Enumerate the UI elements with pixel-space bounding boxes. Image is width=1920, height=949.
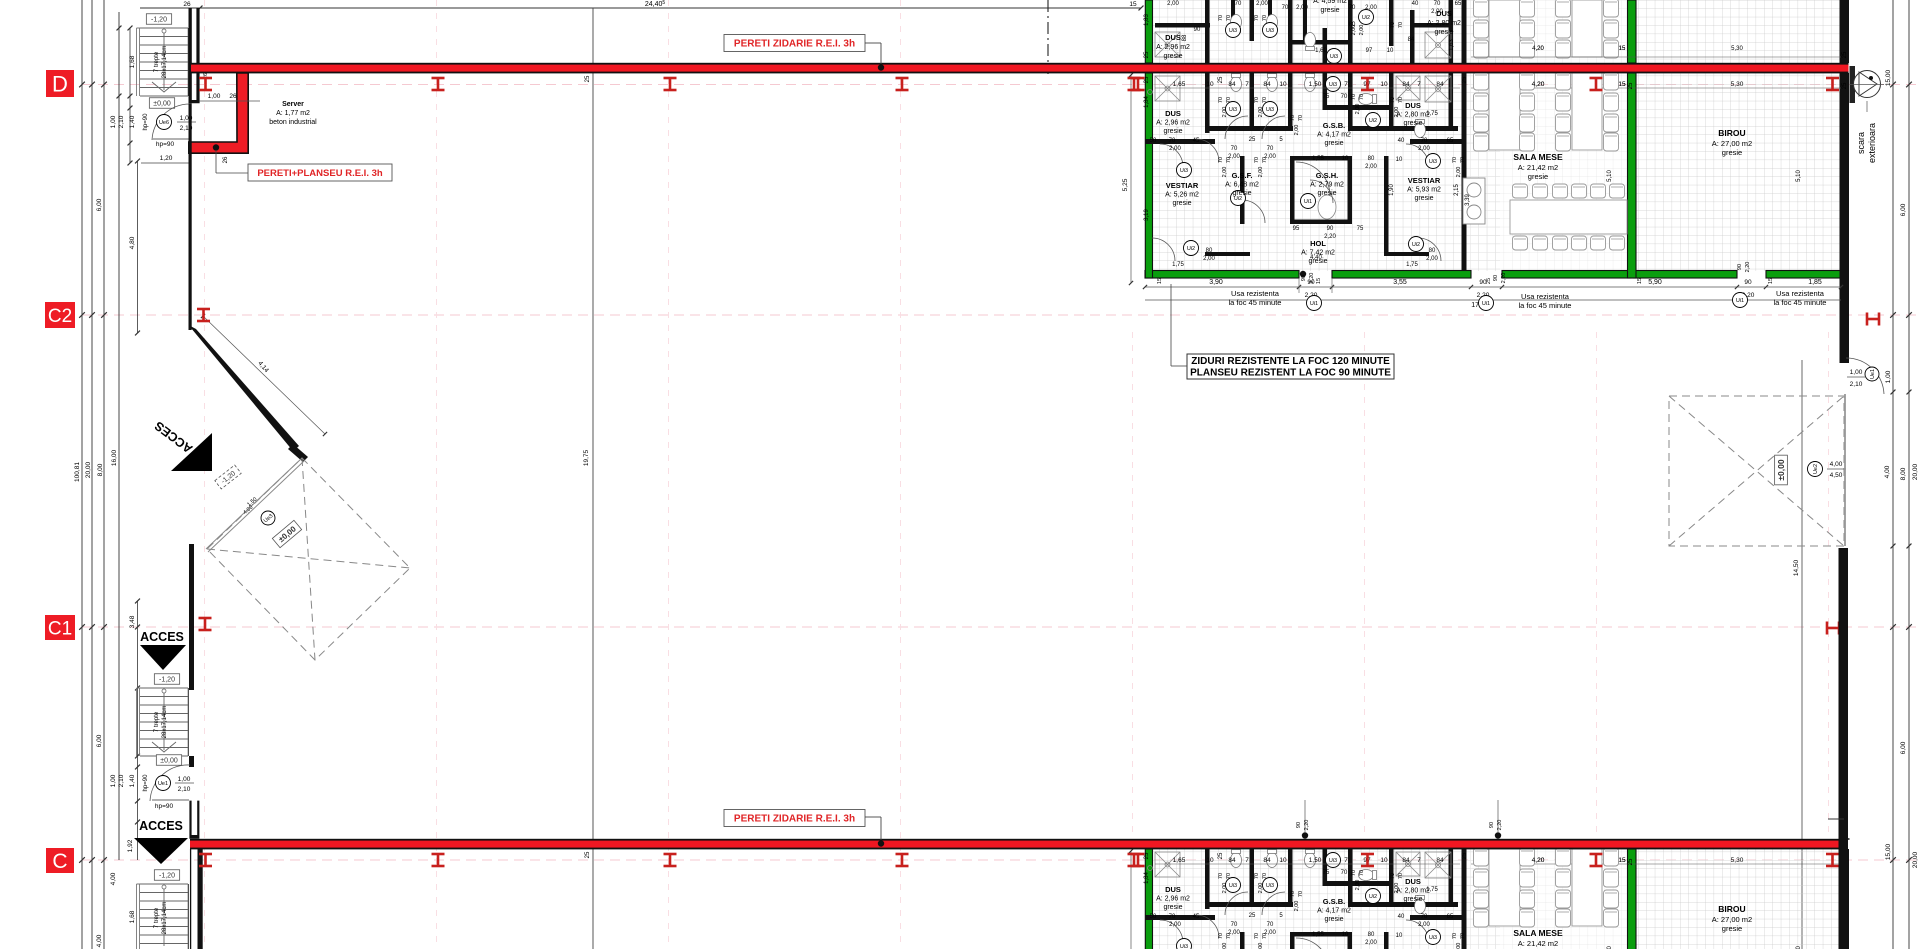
svg-text:Ui3: Ui3 — [1266, 883, 1274, 889]
svg-text:4,00: 4,00 — [1830, 461, 1843, 468]
svg-text:84: 84 — [1402, 857, 1410, 864]
svg-text:2,00: 2,00 — [1167, 1, 1179, 7]
svg-text:Ui3: Ui3 — [1329, 858, 1337, 864]
svg-text:2,00: 2,00 — [1365, 940, 1377, 946]
svg-text:A: 27,00 m2: A: 27,00 m2 — [1712, 915, 1752, 924]
svg-text:2,20: 2,20 — [1324, 234, 1336, 240]
svg-text:70: 70 — [1235, 1, 1242, 7]
svg-text:±0,00: ±0,00 — [160, 758, 178, 765]
svg-text:BIROU: BIROU — [1718, 904, 1745, 914]
svg-text:la foc 45 minute: la foc 45 minute — [1519, 301, 1572, 310]
svg-text:65: 65 — [1447, 138, 1454, 144]
svg-text:90: 90 — [1489, 822, 1495, 828]
svg-text:70: 70 — [1231, 922, 1238, 928]
svg-text:±0,00: ±0,00 — [1776, 459, 1786, 480]
svg-text:25: 25 — [1842, 51, 1848, 58]
svg-text:70: 70 — [1254, 873, 1260, 879]
svg-text:4,00: 4,00 — [110, 872, 117, 885]
svg-text:50: 50 — [1150, 914, 1157, 920]
svg-text:gresie: gresie — [1434, 29, 1453, 36]
svg-text:2,00: 2,00 — [1294, 125, 1300, 136]
svg-text:84: 84 — [1408, 37, 1415, 43]
svg-text:25: 25 — [1249, 913, 1256, 919]
svg-text:2,00: 2,00 — [1426, 256, 1438, 262]
svg-text:70: 70 — [1460, 157, 1466, 163]
svg-text:Ui3: Ui3 — [1429, 935, 1437, 941]
svg-text:10: 10 — [1342, 156, 1349, 162]
svg-text:10: 10 — [1206, 81, 1214, 88]
svg-text:70: 70 — [1262, 157, 1268, 163]
svg-text:26: 26 — [229, 93, 237, 100]
svg-text:10: 10 — [1279, 81, 1287, 88]
svg-text:16,00: 16,00 — [111, 449, 118, 466]
svg-text:70: 70 — [1226, 873, 1232, 879]
svg-text:2,00: 2,00 — [1258, 943, 1264, 949]
svg-text:25: 25 — [1628, 82, 1634, 89]
svg-text:2,00: 2,00 — [1258, 167, 1264, 178]
svg-text:2,00: 2,00 — [1456, 167, 1462, 178]
svg-text:ZIDURI REZISTENTE LA FOC 120 M: ZIDURI REZISTENTE LA FOC 120 MINUTE — [1191, 356, 1390, 367]
svg-text:1,00: 1,00 — [1850, 369, 1863, 376]
svg-text:84: 84 — [1436, 81, 1444, 88]
svg-text:20,00: 20,00 — [1912, 463, 1919, 480]
svg-text:70: 70 — [1231, 146, 1238, 152]
svg-text:gresie: gresie — [1172, 200, 1191, 207]
svg-text:la foc 45 minute: la foc 45 minute — [1774, 298, 1827, 307]
svg-text:gresie: gresie — [1163, 128, 1182, 135]
svg-text:2,00: 2,00 — [1418, 922, 1430, 928]
svg-text:1,50: 1,50 — [1309, 81, 1322, 88]
svg-text:1,63: 1,63 — [1449, 39, 1455, 51]
svg-text:Ui3: Ui3 — [1180, 168, 1188, 174]
svg-text:Ue1: Ue1 — [1870, 369, 1876, 379]
svg-text:90: 90 — [1296, 822, 1302, 828]
svg-text:1,84: 1,84 — [1144, 96, 1150, 108]
svg-text:gresie: gresie — [1403, 120, 1422, 127]
svg-text:70: 70 — [1390, 97, 1396, 103]
svg-text:25: 25 — [1842, 82, 1848, 89]
svg-text:70: 70 — [1298, 891, 1304, 897]
svg-text:70: 70 — [1262, 933, 1268, 939]
svg-text:2,00: 2,00 — [1431, 9, 1443, 15]
svg-text:Ui3: Ui3 — [1330, 54, 1338, 60]
svg-text:2,20: 2,20 — [1501, 273, 1507, 284]
svg-text:6,00: 6,00 — [1900, 203, 1907, 216]
svg-text:80: 80 — [1429, 248, 1436, 254]
svg-text:DUS: DUS — [1165, 885, 1181, 894]
svg-text:70: 70 — [1452, 157, 1458, 163]
svg-text:G.S.B.: G.S.B. — [1323, 121, 1346, 130]
svg-text:65: 65 — [1447, 914, 1454, 920]
svg-text:A: 5,26 m2: A: 5,26 m2 — [1165, 192, 1199, 199]
svg-text:A: 6,48 m2: A: 6,48 m2 — [1225, 182, 1259, 189]
svg-text:scara: scara — [1856, 132, 1866, 154]
svg-text:70: 70 — [1298, 115, 1304, 121]
svg-text:D: D — [52, 71, 68, 96]
svg-text:1,40: 1,40 — [129, 115, 136, 128]
svg-text:15: 15 — [1619, 46, 1626, 52]
svg-text:-1,20: -1,20 — [151, 17, 167, 24]
svg-text:50: 50 — [1150, 138, 1157, 144]
svg-text:hp=90: hp=90 — [143, 774, 149, 792]
svg-text:70: 70 — [1359, 870, 1365, 876]
svg-text:2,00: 2,00 — [1355, 104, 1361, 115]
svg-text:A: 2,80 m2: A: 2,80 m2 — [1427, 20, 1461, 27]
svg-text:70: 70 — [1218, 97, 1224, 103]
svg-text:1,83: 1,83 — [1144, 14, 1150, 26]
svg-text:Ui3: Ui3 — [1266, 28, 1274, 34]
svg-text:gresie: gresie — [1722, 148, 1742, 157]
svg-text:28x17,14cm: 28x17,14cm — [162, 706, 168, 739]
svg-text:70: 70 — [1226, 933, 1232, 939]
svg-text:8,00: 8,00 — [1900, 467, 1907, 480]
svg-text:84: 84 — [1402, 81, 1410, 88]
svg-text:80: 80 — [1368, 932, 1375, 938]
svg-text:7: 7 — [1245, 857, 1249, 864]
svg-text:4,50: 4,50 — [1830, 472, 1843, 479]
svg-text:70: 70 — [1390, 22, 1396, 28]
svg-text:Ui2: Ui2 — [1369, 118, 1377, 124]
svg-text:3,39: 3,39 — [1465, 194, 1471, 206]
svg-text:2,20: 2,20 — [1309, 273, 1315, 284]
svg-text:2,15: 2,15 — [1454, 184, 1460, 196]
svg-text:70: 70 — [1349, 5, 1356, 11]
svg-text:1,90: 1,90 — [1389, 184, 1395, 196]
svg-text:Usa rezistenta: Usa rezistenta — [1776, 289, 1825, 298]
svg-text:70: 70 — [1290, 115, 1296, 121]
svg-text:2,00: 2,00 — [1258, 107, 1264, 118]
svg-text:gresie: gresie — [1324, 140, 1343, 147]
svg-text:1,20: 1,20 — [160, 155, 173, 162]
svg-text:1,68: 1,68 — [129, 55, 136, 68]
svg-text:Ue2: Ue2 — [1813, 464, 1819, 474]
svg-text:2,20: 2,20 — [1304, 820, 1310, 831]
svg-text:Ui3: Ui3 — [1429, 159, 1437, 165]
svg-text:1,00: 1,00 — [178, 776, 191, 783]
svg-text:70: 70 — [1267, 146, 1274, 152]
svg-text:80: 80 — [1206, 248, 1213, 254]
svg-text:70: 70 — [1169, 138, 1176, 144]
svg-text:2,00: 2,00 — [1394, 107, 1400, 118]
svg-text:10: 10 — [1206, 857, 1214, 864]
svg-text:1,75: 1,75 — [1406, 262, 1418, 268]
svg-text:exterioara: exterioara — [1867, 123, 1877, 163]
svg-text:1,65: 1,65 — [1173, 81, 1186, 88]
svg-text:70: 70 — [1290, 891, 1296, 897]
svg-text:ACCES: ACCES — [140, 630, 184, 644]
svg-text:90: 90 — [1194, 27, 1201, 33]
svg-text:2,00: 2,00 — [1222, 107, 1228, 118]
svg-text:100,81: 100,81 — [74, 462, 81, 482]
svg-text:70: 70 — [1434, 1, 1441, 7]
svg-text:-1,20: -1,20 — [159, 677, 175, 684]
svg-text:PERETI+PLANSEU R.E.I. 3h: PERETI+PLANSEU R.E.I. 3h — [257, 168, 383, 179]
svg-text:25: 25 — [1218, 76, 1224, 83]
svg-text:84: 84 — [1263, 81, 1271, 88]
svg-text:4,00: 4,00 — [1884, 465, 1891, 478]
svg-text:5,10: 5,10 — [1796, 170, 1802, 182]
svg-text:40: 40 — [1412, 1, 1419, 7]
svg-text:4,00: 4,00 — [96, 934, 103, 947]
svg-text:2,10: 2,10 — [178, 786, 191, 793]
svg-text:C1: C1 — [48, 618, 72, 639]
svg-text:70: 70 — [1254, 15, 1260, 21]
svg-text:75: 75 — [1323, 94, 1330, 100]
svg-text:15: 15 — [1618, 81, 1626, 88]
svg-text:1,65: 1,65 — [1173, 857, 1186, 864]
svg-text:7: 7 — [1417, 81, 1421, 88]
svg-text:1,55: 1,55 — [1312, 156, 1324, 162]
svg-text:la foc 45 minute: la foc 45 minute — [1229, 298, 1282, 307]
svg-text:1,00: 1,00 — [1885, 370, 1892, 383]
svg-text:70: 70 — [1254, 933, 1260, 939]
svg-text:gresie: gresie — [1317, 190, 1336, 197]
svg-text:70: 70 — [1226, 97, 1232, 103]
svg-text:28x17,14cm: 28x17,14cm — [162, 46, 168, 79]
svg-text:BIROU: BIROU — [1718, 128, 1745, 138]
svg-text:70: 70 — [1218, 873, 1224, 879]
svg-text:2,10: 2,10 — [118, 115, 125, 128]
svg-text:15: 15 — [1157, 278, 1163, 284]
svg-text:90: 90 — [1744, 279, 1752, 286]
svg-text:gresie: gresie — [1163, 904, 1182, 911]
svg-text:10: 10 — [1380, 857, 1388, 864]
svg-text:6,00: 6,00 — [96, 734, 103, 747]
svg-text:7 trepte: 7 trepte — [154, 51, 160, 72]
svg-text:A: 2,80 m2: A: 2,80 m2 — [1396, 888, 1430, 895]
svg-text:70: 70 — [1341, 94, 1348, 100]
svg-text:Ui2: Ui2 — [1412, 242, 1420, 248]
svg-text:SALA MESE: SALA MESE — [1513, 928, 1563, 938]
svg-text:80: 80 — [1349, 22, 1356, 28]
svg-text:1,75: 1,75 — [1426, 111, 1438, 117]
svg-text:6,00: 6,00 — [96, 198, 103, 211]
svg-text:70: 70 — [1267, 922, 1274, 928]
svg-text:40: 40 — [1398, 914, 1405, 920]
svg-text:6,00: 6,00 — [1900, 741, 1907, 754]
svg-text:10: 10 — [1342, 932, 1349, 938]
svg-text:A: 4,59 m2: A: 4,59 m2 — [1313, 0, 1347, 5]
svg-text:A: 21,42 m2: A: 21,42 m2 — [1518, 939, 1558, 948]
svg-text:25: 25 — [1144, 76, 1150, 83]
svg-text:15: 15 — [1637, 278, 1643, 284]
svg-text:2,00: 2,00 — [1222, 943, 1228, 949]
svg-text:14,50: 14,50 — [1793, 559, 1800, 576]
svg-text:25: 25 — [1144, 51, 1150, 58]
svg-text:gresie: gresie — [1163, 53, 1182, 60]
svg-text:A: 2,96 m2: A: 2,96 m2 — [1156, 44, 1190, 51]
svg-text:A: 27,00 m2: A: 27,00 m2 — [1712, 139, 1752, 148]
svg-text:25: 25 — [1144, 852, 1150, 859]
svg-text:1,84: 1,84 — [1144, 872, 1150, 884]
svg-text:88: 88 — [1182, 34, 1188, 41]
svg-text:Ue6: Ue6 — [159, 120, 169, 126]
svg-text:A: 5,93 m2: A: 5,93 m2 — [1407, 187, 1441, 194]
svg-text:7 trepte: 7 trepte — [154, 711, 160, 732]
svg-text:PERETI ZIDARIE R.E.I. 3h: PERETI ZIDARIE R.E.I. 3h — [734, 814, 855, 825]
svg-text:±0,00: ±0,00 — [153, 101, 171, 108]
svg-text:A: 4,17 m2: A: 4,17 m2 — [1317, 132, 1351, 139]
svg-text:2,00: 2,00 — [1222, 883, 1228, 894]
svg-text:2,00: 2,00 — [1365, 5, 1377, 11]
svg-text:90: 90 — [1737, 264, 1743, 270]
svg-text:70: 70 — [1390, 873, 1396, 879]
svg-text:70: 70 — [1359, 94, 1365, 100]
svg-text:DUS: DUS — [1405, 877, 1421, 886]
svg-text:DUS: DUS — [1165, 33, 1181, 42]
svg-text:Ui1: Ui1 — [1304, 199, 1312, 205]
svg-text:10: 10 — [1380, 81, 1388, 88]
svg-text:1,40: 1,40 — [129, 774, 136, 787]
svg-text:1,60: 1,60 — [1315, 48, 1327, 54]
svg-text:Ui2: Ui2 — [1369, 894, 1377, 900]
svg-text:84: 84 — [1436, 857, 1444, 864]
svg-text:DUS: DUS — [1405, 101, 1421, 110]
svg-text:1,92: 1,92 — [127, 839, 134, 852]
svg-text:G.S.H.: G.S.H. — [1316, 171, 1339, 180]
svg-text:90: 90 — [1327, 226, 1334, 232]
svg-text:25: 25 — [585, 851, 591, 858]
svg-text:80: 80 — [1368, 156, 1375, 162]
svg-text:15: 15 — [1316, 278, 1322, 284]
svg-text:1,75: 1,75 — [1172, 262, 1184, 268]
svg-text:Usa rezistenta: Usa rezistenta — [1521, 292, 1570, 301]
svg-text:7: 7 — [1344, 857, 1348, 864]
svg-text:4,20: 4,20 — [1532, 81, 1545, 88]
svg-text:70: 70 — [1341, 870, 1348, 876]
svg-text:HOL: HOL — [1310, 239, 1326, 248]
svg-text:1,75: 1,75 — [1426, 887, 1438, 893]
svg-text:3,48: 3,48 — [129, 615, 136, 628]
svg-text:Ui1: Ui1 — [1310, 301, 1318, 307]
svg-text:Usa rezistenta: Usa rezistenta — [1231, 289, 1280, 298]
svg-text:A: 21,42 m2: A: 21,42 m2 — [1518, 163, 1558, 172]
svg-text:2,00: 2,00 — [1359, 25, 1365, 36]
svg-text:2,20: 2,20 — [1745, 262, 1751, 273]
svg-text:Server: Server — [282, 101, 304, 108]
svg-text:gresie: gresie — [1528, 172, 1548, 181]
svg-text:1,00: 1,00 — [208, 93, 221, 100]
svg-text:gresie: gresie — [1403, 896, 1422, 903]
svg-text:VESTIAR: VESTIAR — [1408, 176, 1441, 185]
svg-text:15,00: 15,00 — [1885, 69, 1892, 86]
svg-text:90: 90 — [1493, 275, 1499, 281]
svg-text:hp=90: hp=90 — [155, 803, 174, 810]
svg-text:70: 70 — [1398, 22, 1404, 28]
svg-text:65: 65 — [1455, 1, 1462, 7]
svg-text:2,00: 2,00 — [1365, 164, 1377, 170]
svg-text:G.S.F.: G.S.F. — [1232, 171, 1253, 180]
svg-text:A: 2,96 m2: A: 2,96 m2 — [1156, 120, 1190, 127]
svg-text:70: 70 — [1254, 157, 1260, 163]
svg-text:70: 70 — [1421, 914, 1428, 920]
svg-text:PLANSEU REZISTENT LA FOC 90 MI: PLANSEU REZISTENT LA FOC 90 MINUTE — [1190, 368, 1391, 379]
svg-text:70: 70 — [1218, 15, 1224, 21]
svg-text:1,00: 1,00 — [110, 774, 117, 787]
svg-text:Ui3: Ui3 — [1229, 883, 1237, 889]
svg-text:24,405: 24,405 — [645, 0, 666, 8]
svg-text:2,00: 2,00 — [1296, 5, 1308, 11]
svg-text:gresie: gresie — [1232, 190, 1251, 197]
svg-text:75: 75 — [1357, 226, 1364, 232]
svg-text:5,30: 5,30 — [1731, 81, 1744, 88]
svg-text:2,00: 2,00 — [1355, 880, 1361, 891]
svg-text:70: 70 — [1282, 5, 1289, 11]
svg-text:70: 70 — [1262, 97, 1268, 103]
svg-text:DUS: DUS — [1165, 109, 1181, 118]
svg-text:25: 25 — [1462, 852, 1468, 859]
svg-text:70: 70 — [1452, 933, 1458, 939]
svg-text:1,85: 1,85 — [1808, 279, 1822, 286]
svg-text:20,00: 20,00 — [85, 461, 92, 478]
svg-text:beton industrial: beton industrial — [269, 119, 317, 126]
svg-text:gresie: gresie — [1320, 7, 1339, 14]
svg-text:Ui3: Ui3 — [1329, 82, 1337, 88]
svg-text:4,80: 4,80 — [129, 236, 136, 249]
svg-text:4,20: 4,20 — [1532, 857, 1545, 864]
svg-text:hp=90: hp=90 — [156, 141, 175, 148]
svg-text:70: 70 — [1254, 97, 1260, 103]
svg-text:5,90: 5,90 — [1648, 279, 1662, 286]
svg-text:ACCES: ACCES — [139, 819, 183, 833]
svg-text:15: 15 — [1618, 857, 1626, 864]
svg-text:10: 10 — [1279, 857, 1287, 864]
svg-text:PERETI ZIDARIE R.E.I. 3h: PERETI ZIDARIE R.E.I. 3h — [734, 39, 855, 50]
svg-text:25: 25 — [1249, 137, 1256, 143]
svg-text:Ui3: Ui3 — [1266, 107, 1274, 113]
svg-text:2,00: 2,00 — [1169, 146, 1181, 152]
svg-text:70: 70 — [1398, 873, 1404, 879]
svg-text:7: 7 — [1245, 81, 1249, 88]
svg-text:2,00: 2,00 — [1222, 167, 1228, 178]
svg-text:70: 70 — [1169, 914, 1176, 920]
svg-text:20,00: 20,00 — [1912, 851, 1919, 868]
svg-text:25: 25 — [1486, 278, 1492, 284]
svg-text:70: 70 — [1262, 873, 1268, 879]
svg-text:25: 25 — [1462, 76, 1468, 83]
svg-text:8,00: 8,00 — [97, 463, 104, 476]
svg-text:3,90: 3,90 — [1209, 279, 1223, 286]
svg-text:C2: C2 — [48, 306, 72, 327]
svg-text:-1,20: -1,20 — [159, 873, 175, 880]
svg-text:84: 84 — [1228, 857, 1236, 864]
svg-text:5,30: 5,30 — [1731, 46, 1743, 52]
svg-text:A: 2,79 m2: A: 2,79 m2 — [1310, 182, 1344, 189]
svg-text:2,20: 2,20 — [1497, 820, 1503, 831]
svg-text:2,00: 2,00 — [1258, 883, 1264, 894]
svg-text:gresie: gresie — [1722, 924, 1742, 933]
svg-text:70: 70 — [1460, 933, 1466, 939]
svg-text:Ui1: Ui1 — [1482, 301, 1490, 307]
svg-text:25: 25 — [1628, 858, 1634, 865]
svg-text:84: 84 — [1263, 857, 1271, 864]
svg-text:26: 26 — [223, 156, 229, 163]
svg-text:2,10: 2,10 — [118, 774, 125, 787]
svg-text:75: 75 — [1323, 870, 1330, 876]
svg-text:5,10: 5,10 — [1607, 170, 1613, 182]
svg-text:Ui1: Ui1 — [1736, 298, 1744, 304]
svg-text:A: 4,17 m2: A: 4,17 m2 — [1317, 908, 1351, 915]
svg-text:70: 70 — [1226, 157, 1232, 163]
svg-text:25: 25 — [1218, 852, 1224, 859]
svg-text:5,25: 5,25 — [1122, 178, 1129, 191]
svg-text:hp=90: hp=90 — [143, 113, 149, 131]
svg-text:Ui2: Ui2 — [1187, 246, 1195, 252]
svg-text:Ui2: Ui2 — [1362, 15, 1370, 21]
svg-text:70: 70 — [1351, 870, 1357, 876]
svg-text:1,00: 1,00 — [110, 115, 117, 128]
svg-text:2,00: 2,00 — [1169, 922, 1181, 928]
